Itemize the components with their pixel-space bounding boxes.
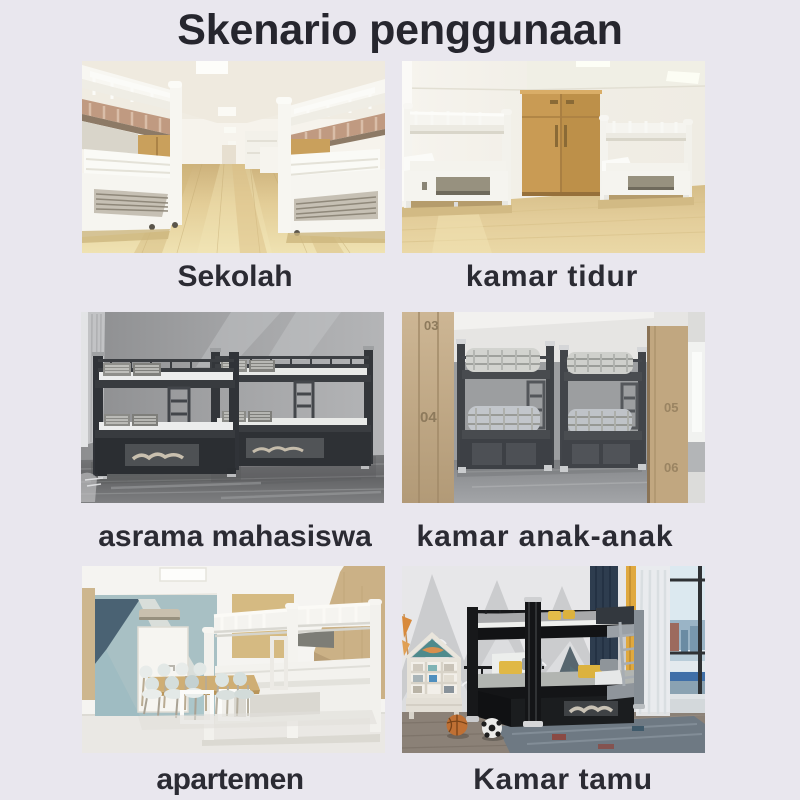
svg-text:03: 03 (424, 318, 438, 333)
svg-text:06: 06 (664, 460, 678, 475)
svg-text:05: 05 (664, 400, 678, 415)
svg-text:04: 04 (420, 409, 437, 426)
